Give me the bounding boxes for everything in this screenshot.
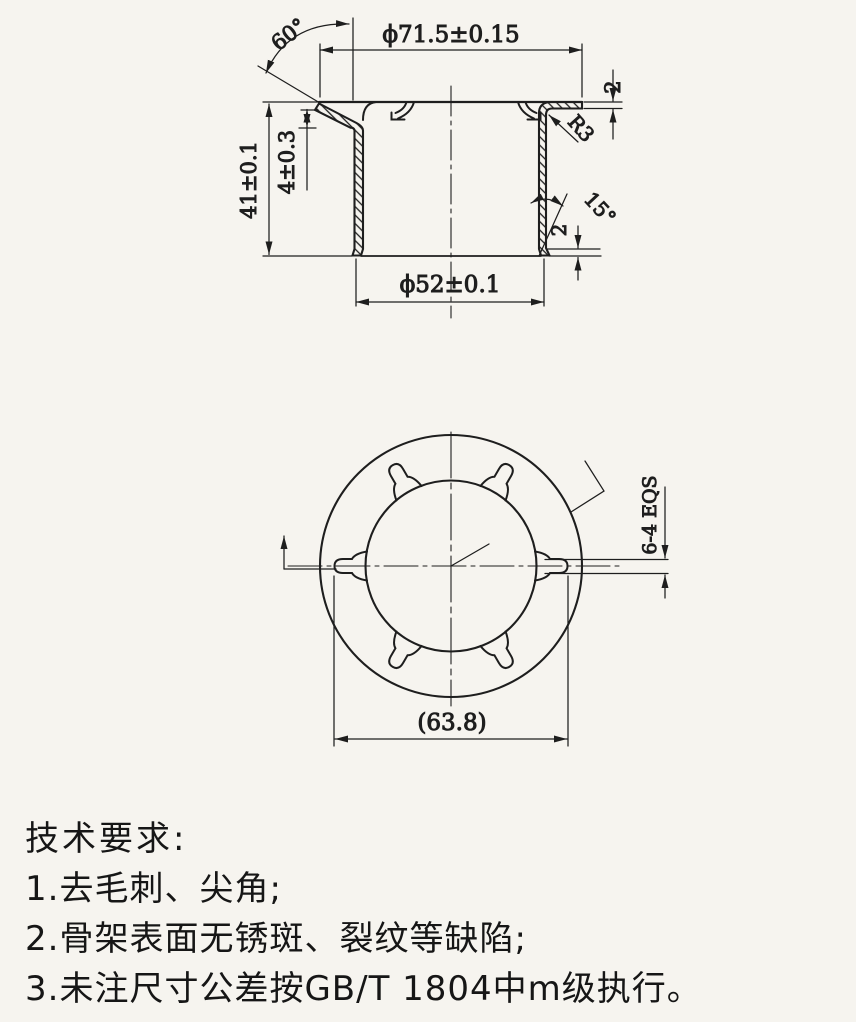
tab-60 [480,631,521,674]
plan-view: 6-4 EQS (63.8) [284,432,668,746]
tab-profile-left [392,102,415,120]
tab-120 [380,631,421,674]
tab-300 [480,458,521,501]
left-tab-section [315,104,363,256]
note-line-1: 1.去毛刺、尖角; [25,864,805,914]
dim-tab-drop: 4±0.3 [275,130,299,194]
note-line-3: 3.未注尺寸公差按GB/T 1804中m级执行。 [25,964,805,1014]
dim-bend-radius: R3 [563,110,599,147]
dim-flare-angle: 15° [579,187,621,229]
dim-flare-height: 2 [547,224,571,237]
dim-height: 41±0.1 [237,141,261,219]
note-line-2: 2.骨架表面无锈斑、裂纹等缺陷; [25,914,805,964]
dim-flange-thickness: 2 [601,80,625,93]
dim-tab-tip-diameter: (63.8) [417,710,486,736]
radius-mark [451,544,489,566]
left-bend-fillet [363,102,376,120]
dim-top-angle: 60° [267,14,311,56]
plan-dim-lines [284,461,668,746]
dim-tab-width: 6-4 EQS [639,475,661,554]
notes-title: 技术要求: [25,814,805,864]
dim-bottom-od: ϕ52±0.1 [400,272,501,298]
drawing-sheet: ϕ71.5±0.15 60° 2 R3 41±0.1 4±0.3 15° 2 ϕ… [0,0,856,1022]
section-dim-lines [258,18,622,306]
technical-requirements: 技术要求: 1.去毛刺、尖角; 2.骨架表面无锈斑、裂纹等缺陷; 3.未注尺寸公… [25,814,805,1014]
tab-profile-right [518,102,541,120]
tab-240 [380,458,421,501]
section-view: ϕ71.5±0.15 60° 2 R3 41±0.1 4±0.3 15° 2 ϕ… [237,14,625,318]
dim-flange-od: ϕ71.5±0.15 [382,22,519,48]
